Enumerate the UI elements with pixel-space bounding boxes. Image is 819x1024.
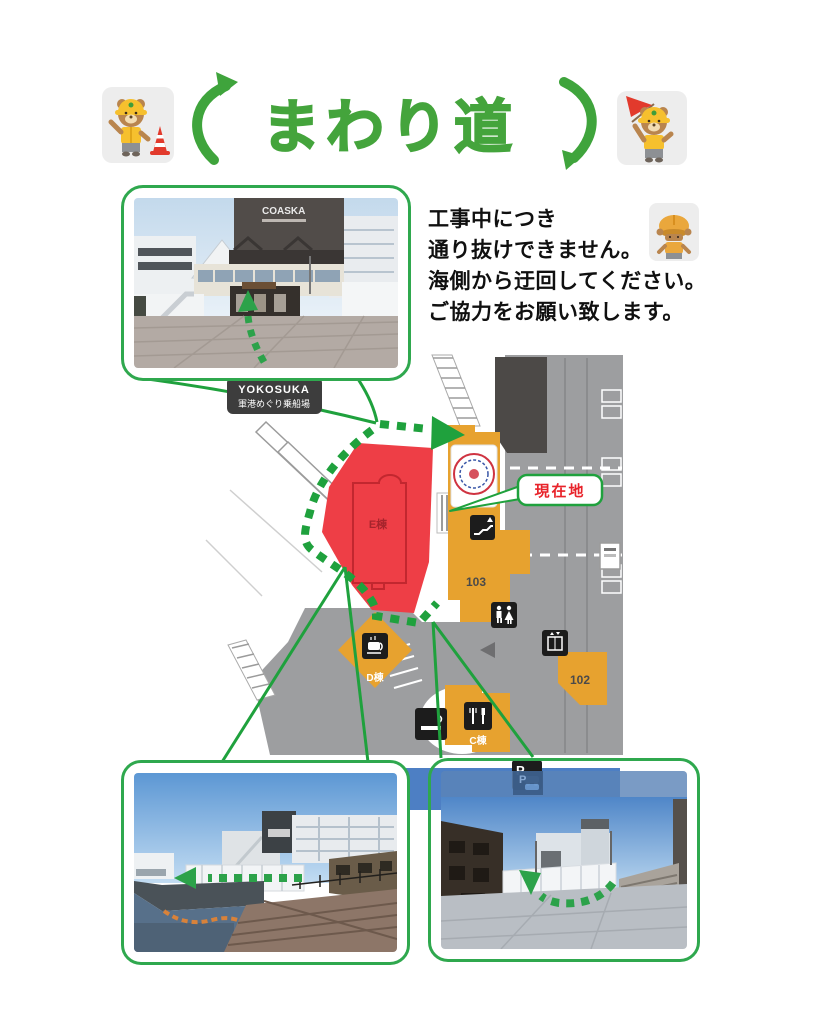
e-wing-label: E棟 [369,517,388,531]
elevator-icon [542,630,568,656]
plaza-detour-photo: P [428,758,700,962]
restaurant-icon [464,702,492,730]
seaside-detour-photo [121,760,410,965]
blocked-entrance-photo: COASKA [121,185,411,381]
current-location-label: 現在地 [534,482,585,500]
site-map: E棟 103 102 D棟 [110,350,645,810]
closed-area-e-wing: E棟 [322,443,433,613]
page-title: まわり道 [262,80,518,164]
dark-terminal-building [495,357,547,453]
worker-bear-flag-mascot [616,90,688,166]
svg-text:COASKA: COASKA [262,206,305,217]
worker-bear-cone-mascot [101,86,175,164]
c-wing-label: C棟 [469,734,487,747]
plaza-photo-image: P [441,771,687,949]
coffee-icon [362,633,388,659]
left-curved-arrow-paren [176,70,238,170]
building-103-label: 103 [466,575,486,589]
smoking-area-icon [415,708,447,740]
escalator-icon [470,515,495,540]
boarding-point-label: YOKOSUKA 軍港めぐり乗船場 [227,377,322,414]
building-102-label: 102 [570,673,590,687]
stairs-hatch-top [432,355,480,426]
info-sign-icon [600,543,620,569]
notice-line-4: ご協力をお願い致します。 [428,297,706,328]
restroom-icon [491,602,517,628]
boarding-label-jp: 軍港めぐり乗船場 [238,398,310,409]
d-wing-label: D棟 [366,671,384,684]
notice-line-3: 海側から迂回してください。 [428,266,706,297]
right-curved-arrow-paren [552,72,614,172]
coaska-entrance-photo-image: COASKA [134,198,398,368]
boarding-label-en: YOKOSUKA [238,384,310,396]
bowing-worker-bear-mascot [648,202,700,262]
seaside-photo-image [134,773,397,952]
detour-notice-page: まわり道 工事中につき 通り抜けできません。 海側から迂回してください。 ご協力… [0,0,819,1024]
